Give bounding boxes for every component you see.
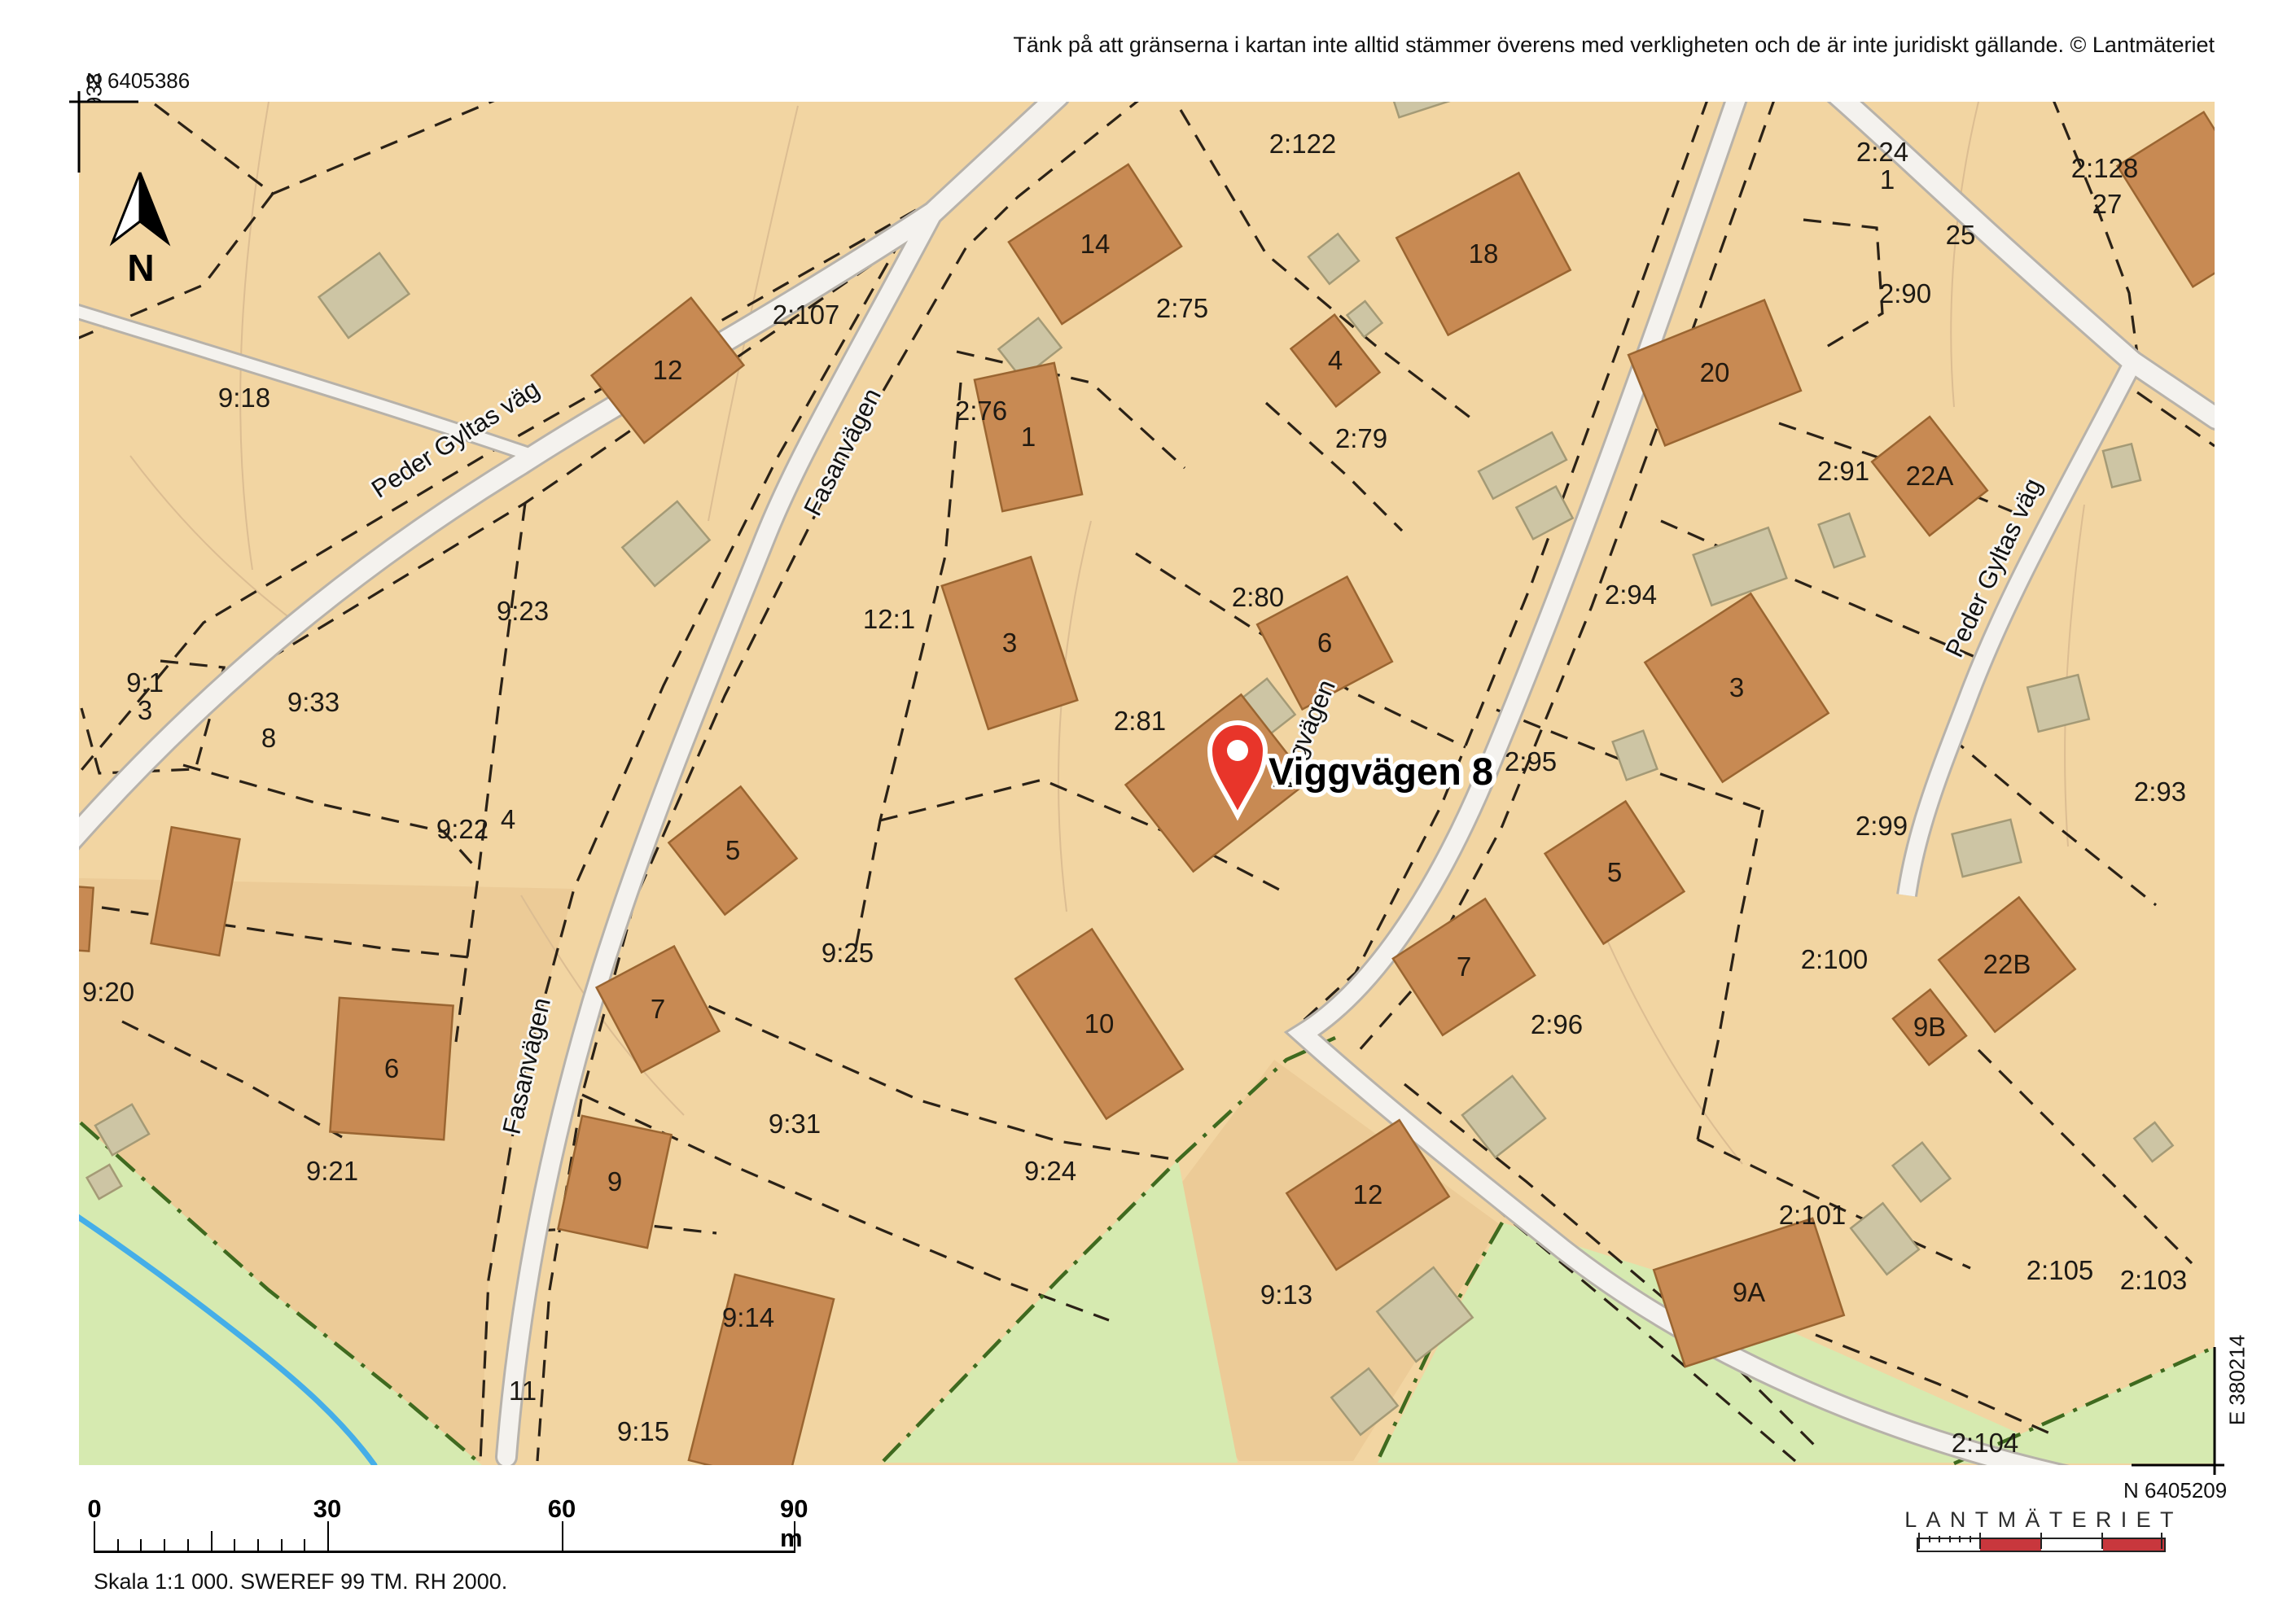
parcel-number-label: 2:100 [1801, 944, 1869, 974]
scale-bar-tick [562, 1521, 563, 1551]
parcel-number-label: 9:31 [769, 1109, 821, 1139]
building-number-label: 14 [1080, 229, 1111, 259]
building-number-label: 5 [1607, 857, 1622, 887]
building-number-label: 9 [607, 1166, 622, 1196]
parcel-number-label: 2:81 [1114, 706, 1166, 736]
parcel-number-label: 9:24 [1024, 1156, 1076, 1186]
building-number-label: 22B [1983, 949, 2031, 979]
scale-caption: Skala 1:1 000. SWEREF 99 TM. RH 2000. [94, 1569, 507, 1595]
parcel-number-label: 2:105 [2027, 1255, 2094, 1285]
logo-bar-minitick [1970, 1536, 1971, 1542]
pin-address-label: Viggvägen 8 [1268, 750, 1493, 793]
map-pin-inner-dot [1227, 740, 1248, 761]
map-layers: 121418412022A363522B5779B6910129APeder G… [45, 33, 2279, 1485]
parcel-number-label: 2:80 [1232, 582, 1284, 612]
building-number-label: 10 [1084, 1008, 1115, 1039]
building-number-label: 18 [1469, 238, 1499, 269]
scale-tick-label: 90 m [780, 1494, 811, 1553]
parcel-number-label: 2:128 [2071, 153, 2139, 183]
logo-bar-minitick [1959, 1536, 1961, 1542]
building-number-label: 6 [384, 1053, 399, 1083]
map-print-page: Tänk på att gränserna i kartan inte allt… [0, 0, 2296, 1623]
scale-bar-tick [234, 1539, 235, 1551]
parcel-number-label: 2:91 [1817, 456, 1869, 486]
logo-bar-segment [2103, 1539, 2165, 1551]
building-number-label: 7 [1457, 951, 1471, 982]
parcel-number-label: 2:24 [1856, 137, 1908, 167]
building-number-label: 5 [725, 835, 740, 865]
building-number-label: 3 [1002, 628, 1017, 658]
parcel-number-label: 11 [509, 1376, 537, 1406]
north-arrow-label: N [114, 246, 168, 290]
parcel-number-label: 9:1 [126, 667, 164, 698]
logo-bar-minitick [1939, 1536, 1940, 1542]
parcel-number-label: 2:94 [1605, 580, 1657, 610]
parcel-number-label: 2:79 [1335, 423, 1387, 453]
parcel-number-label: 2:96 [1531, 1009, 1583, 1039]
parcel-number-label: 2:75 [1156, 293, 1208, 323]
parcel-number-label: 9:23 [497, 596, 549, 626]
parcel-number-label: 2:76 [955, 396, 1007, 426]
logo-bar-tick [2161, 1533, 2162, 1549]
building-number-label: 3 [1729, 672, 1744, 702]
scale-tick-label: 30 [313, 1494, 341, 1524]
scale-bar-tick [164, 1539, 165, 1551]
parcel-number-label: 27 [2092, 189, 2123, 219]
logo-bar-tick [2040, 1533, 2042, 1549]
parcel-number-label: 1 [1880, 164, 1895, 195]
parcel-number-label: 2:103 [2120, 1265, 2188, 1295]
parcel-number-label: 2:107 [773, 300, 840, 330]
parcel-number-label: 4 [501, 804, 515, 834]
parcel-number-label: 2:95 [1505, 746, 1557, 777]
logo-bar-tick [2101, 1533, 2103, 1549]
building-number-label: 4 [1328, 345, 1343, 375]
building-number-label: 1 [1021, 422, 1036, 452]
lantmateriet-logo: LANTMÄTERIET [1897, 1507, 2190, 1552]
logo-bar-minitick [1929, 1536, 1930, 1542]
scale-bar: 0 30 60 90 m [94, 1494, 826, 1568]
scale-tick-label: 0 [87, 1494, 101, 1524]
building-number-label: 9A [1733, 1277, 1765, 1307]
scale-bar-tick [117, 1539, 119, 1551]
parcel-number-label: 9:22 [436, 814, 489, 844]
parcel-number-label: 9:20 [82, 977, 134, 1007]
scale-bar-tick [281, 1539, 283, 1551]
parcel-number-label: 2:99 [1856, 811, 1908, 841]
parcel-number-label: 2:122 [1269, 129, 1337, 159]
building-number-label: 12 [1353, 1179, 1383, 1210]
logo-bar-tick [1979, 1533, 1981, 1549]
building-number-label: 20 [1700, 357, 1730, 387]
parcel-number-label: 25 [1946, 220, 1976, 250]
parcel-number-label: 2:101 [1779, 1200, 1847, 1230]
parcel-number-label: 9:18 [218, 383, 270, 413]
scale-tick-label: 60 [548, 1494, 576, 1524]
parcel-number-label: 9:15 [617, 1416, 669, 1446]
logo-bar-tick [1918, 1533, 1920, 1549]
scale-bar-tick [94, 1521, 95, 1551]
scale-bar-tick [140, 1539, 142, 1551]
parcel-number-label: 3 [138, 695, 152, 725]
lantmateriet-logo-bar [1917, 1538, 2166, 1552]
building-number-label: 6 [1317, 628, 1332, 658]
parcel-number-label: 12:1 [863, 604, 915, 634]
parcel-number-label: 2:104 [1952, 1428, 2019, 1458]
scale-bar-tick [257, 1539, 259, 1551]
scale-bar-tick [304, 1539, 305, 1551]
lantmateriet-logo-text: LANTMÄTERIET [1897, 1507, 2190, 1533]
map-canvas: 121418412022A363522B5779B6910129APeder G… [0, 0, 2296, 1623]
building-number-label: 7 [651, 994, 665, 1024]
scale-bar-line [94, 1551, 795, 1553]
building-number-label: 12 [653, 355, 683, 385]
building-number-label: 22A [1906, 461, 1954, 491]
scale-bar-tick [187, 1539, 189, 1551]
parcel-number-label: 2:93 [2134, 777, 2186, 807]
logo-bar-minitick [1949, 1536, 1951, 1542]
parcel-number-label: 8 [261, 723, 276, 753]
parcel-number-label: 9:14 [722, 1302, 774, 1332]
logo-bar-segment [2041, 1539, 2103, 1551]
logo-bar-segment [1980, 1539, 2042, 1551]
scale-bar-tick [794, 1521, 795, 1551]
parcel-number-label: 9:13 [1260, 1280, 1312, 1310]
scale-bar-tick [211, 1531, 213, 1551]
parcel-number-label: 9:21 [306, 1156, 358, 1186]
parcel-number-label: 9:33 [287, 687, 340, 717]
scale-bar-tick [327, 1521, 329, 1551]
building-number-label: 9B [1913, 1012, 1946, 1042]
parcel-number-label: 9:25 [822, 938, 874, 968]
building [50, 885, 93, 951]
parcel-number-label: 2:90 [1879, 278, 1931, 308]
